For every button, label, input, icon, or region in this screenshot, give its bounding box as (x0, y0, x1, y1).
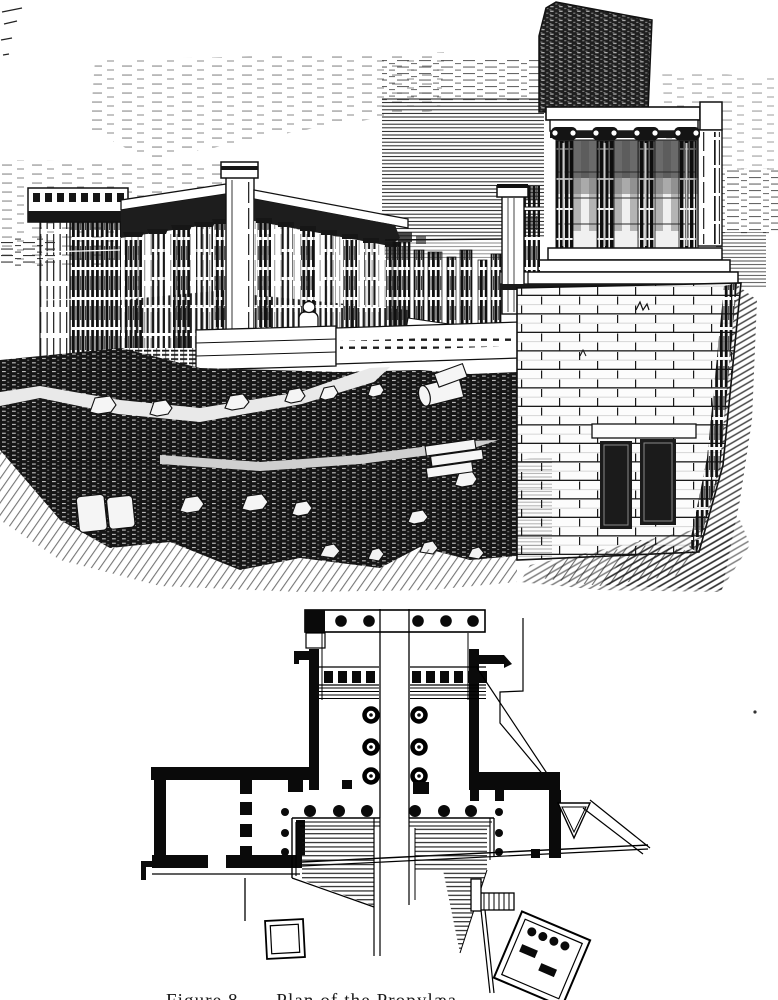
svg-text:Figure 8. — Plan of the Propyl: Figure 8. — Plan of the Propylæa. (166, 991, 463, 1000)
